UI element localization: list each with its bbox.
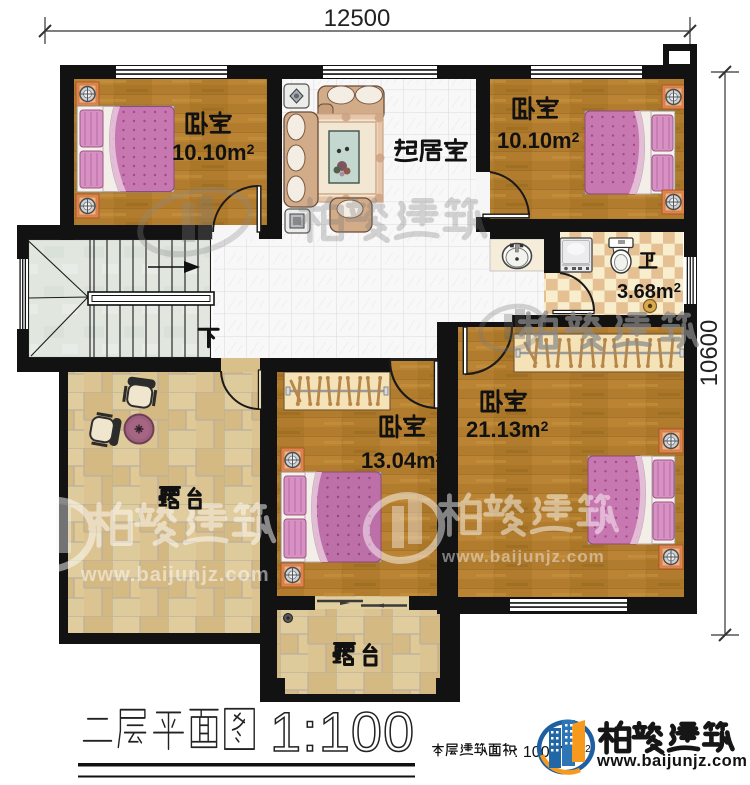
- svg-text:10600: 10600: [696, 320, 723, 387]
- svg-text:10.10m2: 10.10m2: [497, 128, 580, 153]
- svg-text:21.13m2: 21.13m2: [466, 417, 549, 442]
- svg-text:10.10m2: 10.10m2: [172, 140, 255, 165]
- svg-text:3.68m2: 3.68m2: [617, 280, 681, 303]
- svg-text:13.04m2: 13.04m2: [361, 448, 444, 473]
- svg-text:www.baijunjz.com: www.baijunjz.com: [441, 547, 605, 566]
- svg-text:1:100: 1:100: [270, 700, 415, 763]
- svg-text:www.baijunjz.com: www.baijunjz.com: [596, 752, 747, 770]
- svg-text:12500: 12500: [324, 5, 391, 32]
- svg-text:www.baijunjz.com: www.baijunjz.com: [80, 564, 270, 586]
